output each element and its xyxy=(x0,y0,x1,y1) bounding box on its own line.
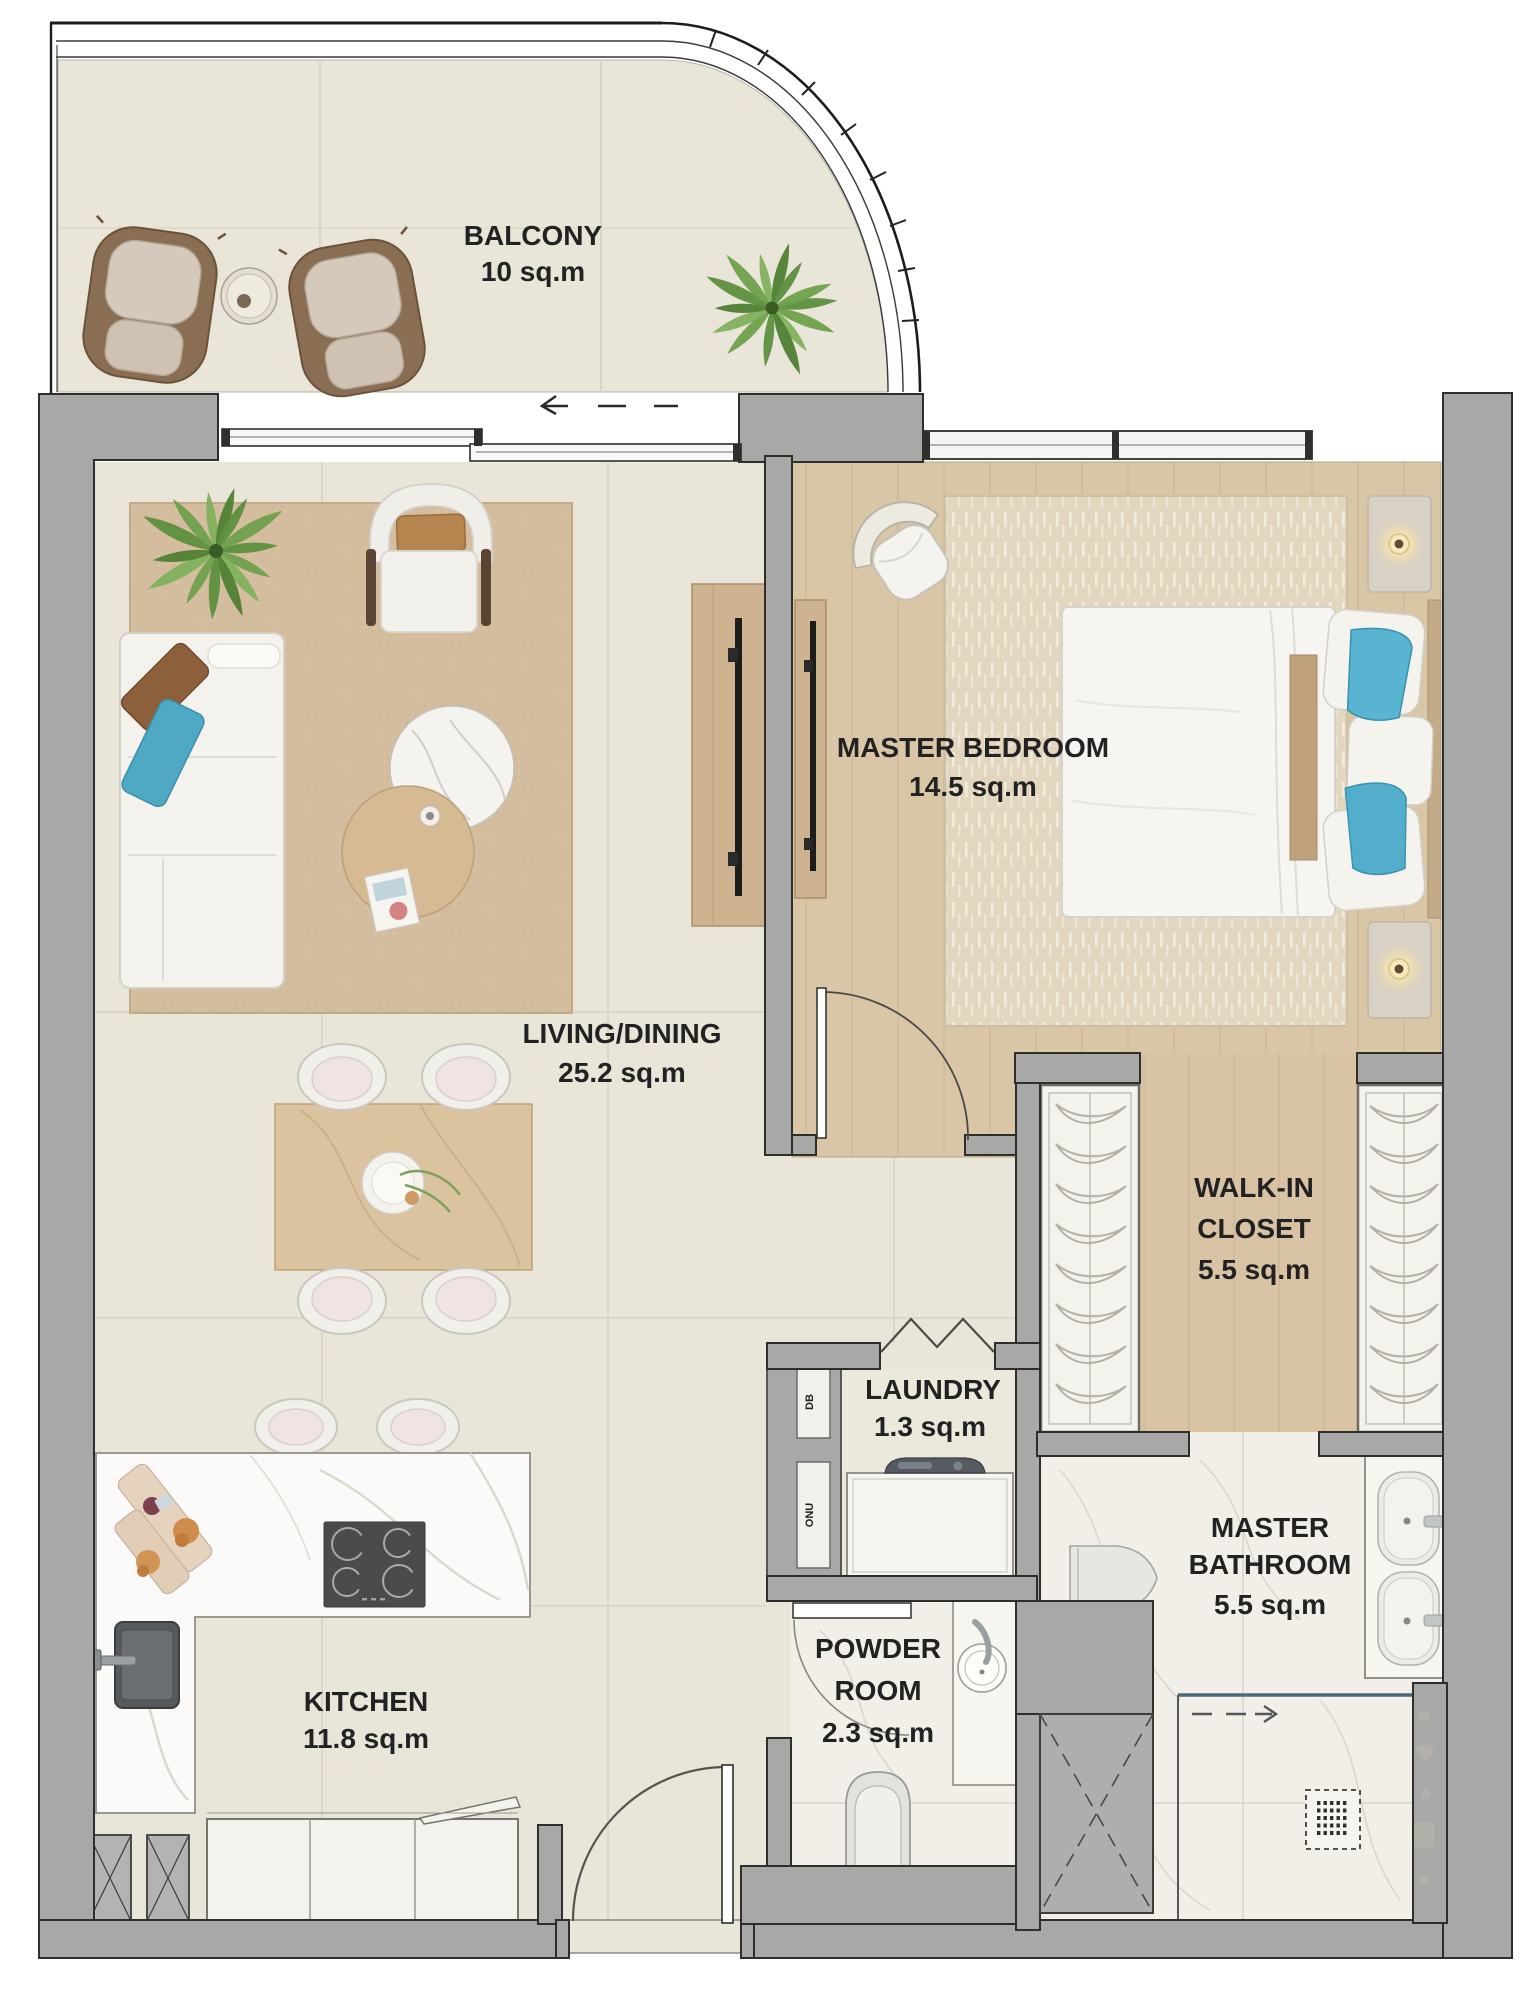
svg-text:MASTER BEDROOM: MASTER BEDROOM xyxy=(837,732,1109,763)
svg-text:25.2 sq.m: 25.2 sq.m xyxy=(558,1057,686,1088)
svg-text:5.5 sq.m: 5.5 sq.m xyxy=(1214,1589,1326,1620)
svg-text:2.3 sq.m: 2.3 sq.m xyxy=(822,1717,934,1748)
svg-text:1.3 sq.m: 1.3 sq.m xyxy=(874,1411,986,1442)
svg-text:POWDER: POWDER xyxy=(815,1633,941,1664)
svg-text:14.5 sq.m: 14.5 sq.m xyxy=(909,771,1037,802)
svg-text:BALCONY: BALCONY xyxy=(464,220,603,251)
svg-text:LAUNDRY: LAUNDRY xyxy=(865,1374,1001,1405)
svg-text:CLOSET: CLOSET xyxy=(1197,1213,1311,1244)
svg-text:ONU: ONU xyxy=(804,1503,816,1528)
svg-text:DB: DB xyxy=(804,1394,816,1410)
svg-text:BATHROOM: BATHROOM xyxy=(1189,1549,1352,1580)
svg-text:MASTER: MASTER xyxy=(1211,1512,1329,1543)
svg-text:ROOM: ROOM xyxy=(834,1675,921,1706)
svg-text:11.8 sq.m: 11.8 sq.m xyxy=(303,1723,429,1754)
svg-text:LIVING/DINING: LIVING/DINING xyxy=(522,1018,721,1049)
svg-text:KITCHEN: KITCHEN xyxy=(304,1686,428,1717)
svg-text:5.5 sq.m: 5.5 sq.m xyxy=(1198,1254,1310,1285)
svg-text:WALK-IN: WALK-IN xyxy=(1194,1172,1314,1203)
svg-text:10 sq.m: 10 sq.m xyxy=(481,256,585,287)
